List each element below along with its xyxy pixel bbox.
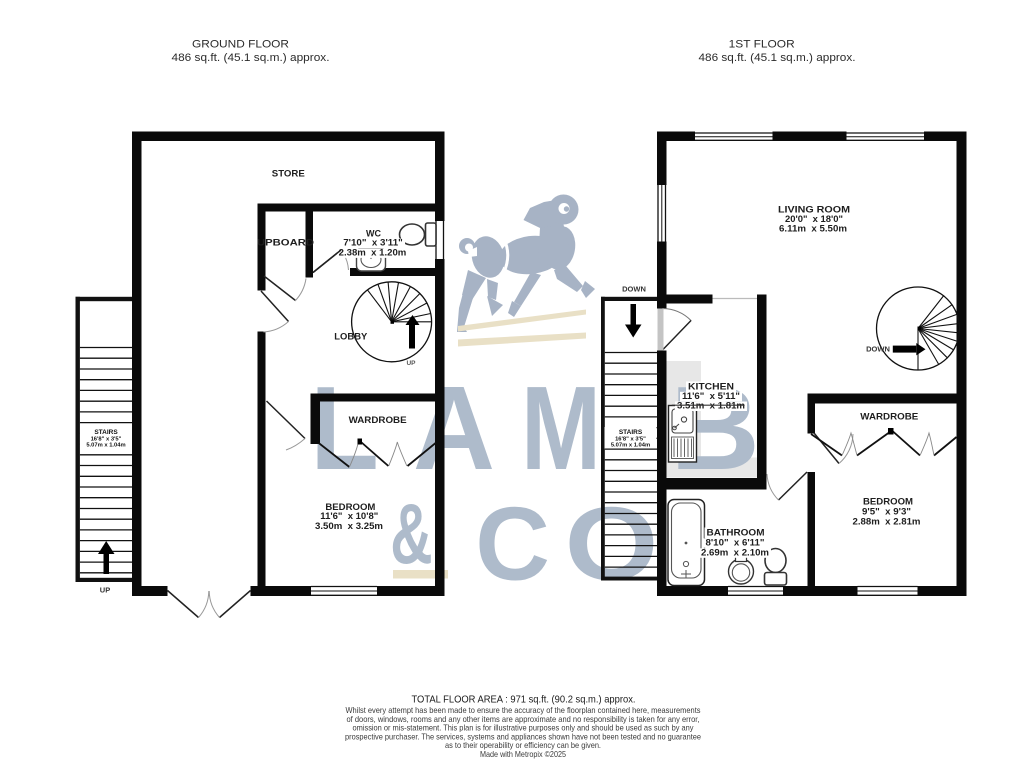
- svg-text:&: &: [390, 487, 432, 582]
- svg-text:9'5" x 9'3": 9'5" x 9'3": [862, 506, 911, 516]
- svg-text:GROUND FLOOR: GROUND FLOOR: [192, 39, 289, 51]
- svg-text:5.07m x 1.04m: 5.07m x 1.04m: [611, 443, 650, 449]
- svg-text:2.38m x 1.20m: 2.38m x 1.20m: [339, 247, 407, 257]
- svg-text:as to their operability or eff: as to their operability or efficiency ca…: [445, 741, 601, 750]
- svg-text:Whilst every attempt has been: Whilst every attempt has been made to en…: [346, 706, 701, 715]
- svg-text:11'6" x 5'11": 11'6" x 5'11": [682, 391, 740, 401]
- svg-text:486 sq.ft. (45.1 sq.m.) approx: 486 sq.ft. (45.1 sq.m.) approx.: [172, 52, 330, 64]
- svg-text:11'6" x 10'8": 11'6" x 10'8": [320, 511, 378, 521]
- svg-text:DOWN: DOWN: [866, 345, 890, 354]
- svg-text:2.88m x 2.81m: 2.88m x 2.81m: [853, 516, 921, 526]
- svg-text:UPBOARD: UPBOARD: [257, 238, 314, 249]
- svg-text:6.11m x 5.50m: 6.11m x 5.50m: [779, 224, 847, 234]
- svg-text:5.07m x 1.04m: 5.07m x 1.04m: [86, 443, 125, 449]
- svg-text:O: O: [565, 487, 659, 603]
- svg-text:2.69m x 2.10m: 2.69m x 2.10m: [701, 547, 769, 557]
- svg-text:1ST FLOOR: 1ST FLOOR: [729, 39, 795, 51]
- svg-text:20'0" x 18'0": 20'0" x 18'0": [785, 214, 843, 224]
- svg-text:16'8" x 3'5": 16'8" x 3'5": [91, 436, 122, 442]
- svg-text:of doors, windows, rooms and a: of doors, windows, rooms and any other i…: [347, 715, 700, 724]
- svg-text:omission or mis-statement. Thi: omission or mis-statement. This plan is …: [353, 724, 695, 733]
- svg-text:A: A: [413, 362, 495, 495]
- svg-text:STAIRS: STAIRS: [94, 429, 118, 436]
- svg-text:WARDROBE: WARDROBE: [860, 412, 918, 423]
- svg-text:STORE: STORE: [272, 169, 305, 180]
- svg-text:UP: UP: [406, 360, 416, 367]
- svg-text:3.50m x 3.25m: 3.50m x 3.25m: [315, 521, 383, 531]
- svg-text:LOBBY: LOBBY: [334, 332, 368, 343]
- svg-text:prospective purchaser. The ser: prospective purchaser. The services, sys…: [345, 732, 701, 741]
- svg-text:L: L: [310, 362, 379, 495]
- svg-text:7'10" x 3'11": 7'10" x 3'11": [343, 238, 403, 248]
- svg-text:M: M: [521, 362, 601, 495]
- svg-text:UP: UP: [100, 586, 110, 595]
- svg-text:TOTAL FLOOR AREA : 971 sq.ft.: TOTAL FLOOR AREA : 971 sq.ft. (90.2 sq.m…: [412, 693, 636, 705]
- svg-text:C: C: [475, 487, 550, 603]
- svg-text:WARDROBE: WARDROBE: [349, 415, 407, 426]
- svg-text:STAIRS: STAIRS: [619, 429, 643, 436]
- svg-text:16'8" x 3'5": 16'8" x 3'5": [615, 436, 646, 442]
- svg-text:486 sq.ft. (45.1 sq.m.) approx: 486 sq.ft. (45.1 sq.m.) approx.: [699, 52, 856, 64]
- svg-text:Made with Metropix ©2025: Made with Metropix ©2025: [480, 750, 566, 759]
- svg-text:DOWN: DOWN: [622, 285, 646, 294]
- svg-text:8'10" x 6'11": 8'10" x 6'11": [706, 537, 765, 547]
